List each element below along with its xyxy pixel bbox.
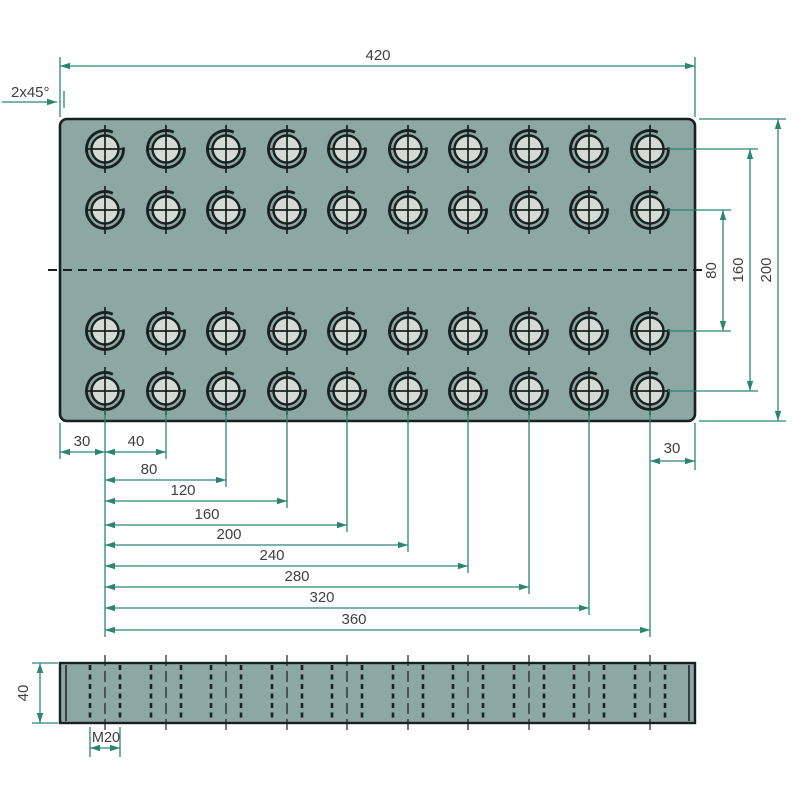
dimension-arrowhead bbox=[640, 627, 650, 633]
dimension-arrowhead bbox=[685, 63, 695, 69]
dimension-arrowhead bbox=[720, 210, 726, 220]
dimension-arrowhead bbox=[105, 627, 115, 633]
dimension-label: 160 bbox=[194, 506, 219, 523]
dimension-arrowhead bbox=[519, 584, 529, 590]
dimension-label: 160 bbox=[730, 257, 747, 282]
dimension-arrowhead bbox=[37, 663, 43, 673]
dimension-arrowhead bbox=[579, 605, 589, 611]
dimension-label: 30 bbox=[664, 440, 681, 457]
dimension-arrowhead bbox=[105, 584, 115, 590]
dimension-arrowhead bbox=[105, 605, 115, 611]
dimension-label: 2x45° bbox=[11, 84, 50, 101]
dimension-arrowhead bbox=[747, 381, 753, 391]
dimension-arrowhead bbox=[60, 63, 70, 69]
dimension-arrowhead bbox=[95, 449, 105, 455]
dimension-label: 30 bbox=[74, 433, 91, 450]
dimension-label: M20 bbox=[92, 730, 120, 746]
dimension-arrowhead bbox=[720, 321, 726, 331]
dimension-label: 200 bbox=[216, 526, 241, 543]
dimension-arrowhead bbox=[747, 149, 753, 159]
dimension-arrowhead bbox=[105, 498, 115, 504]
dimension-arrowhead bbox=[398, 542, 408, 548]
dimension-label: 40 bbox=[128, 433, 145, 450]
plate-technical-drawing: 4202x45°80160200304080120160200240280320… bbox=[0, 0, 800, 800]
dimension-label: 420 bbox=[365, 47, 390, 64]
dimension-arrowhead bbox=[105, 563, 115, 569]
dimension-label: 40 bbox=[15, 685, 32, 702]
top-view bbox=[48, 119, 707, 421]
dimension-arrowhead bbox=[105, 542, 115, 548]
dimension-label: 200 bbox=[758, 257, 775, 282]
dimension-arrowhead bbox=[775, 119, 781, 129]
drawing-canvas: 4202x45°80160200304080120160200240280320… bbox=[0, 0, 800, 800]
dimension-label: 120 bbox=[170, 482, 195, 499]
side-view bbox=[60, 655, 695, 731]
dimension-arrowhead bbox=[458, 563, 468, 569]
dimension-arrowhead bbox=[650, 458, 660, 464]
dimension-label: 360 bbox=[341, 611, 366, 628]
dimension-arrowhead bbox=[775, 411, 781, 421]
dimension-label: 320 bbox=[309, 589, 334, 606]
dimension-arrowhead bbox=[337, 522, 347, 528]
dimension-arrowhead bbox=[216, 477, 226, 483]
dimension-arrowhead bbox=[156, 449, 166, 455]
side-plate-outline bbox=[60, 663, 695, 723]
dimension-label: 240 bbox=[259, 547, 284, 564]
dimension-arrowhead bbox=[60, 449, 70, 455]
dimension-arrowhead bbox=[685, 458, 695, 464]
dimension-arrowhead bbox=[105, 449, 115, 455]
dimension-arrowhead bbox=[105, 477, 115, 483]
dimension-arrowhead bbox=[37, 713, 43, 723]
dimension-label: 80 bbox=[703, 262, 720, 279]
dimension-label: 280 bbox=[284, 568, 309, 585]
dimension-label: 80 bbox=[141, 461, 158, 478]
dimension-arrowhead bbox=[277, 498, 287, 504]
dimension-arrowhead bbox=[105, 522, 115, 528]
